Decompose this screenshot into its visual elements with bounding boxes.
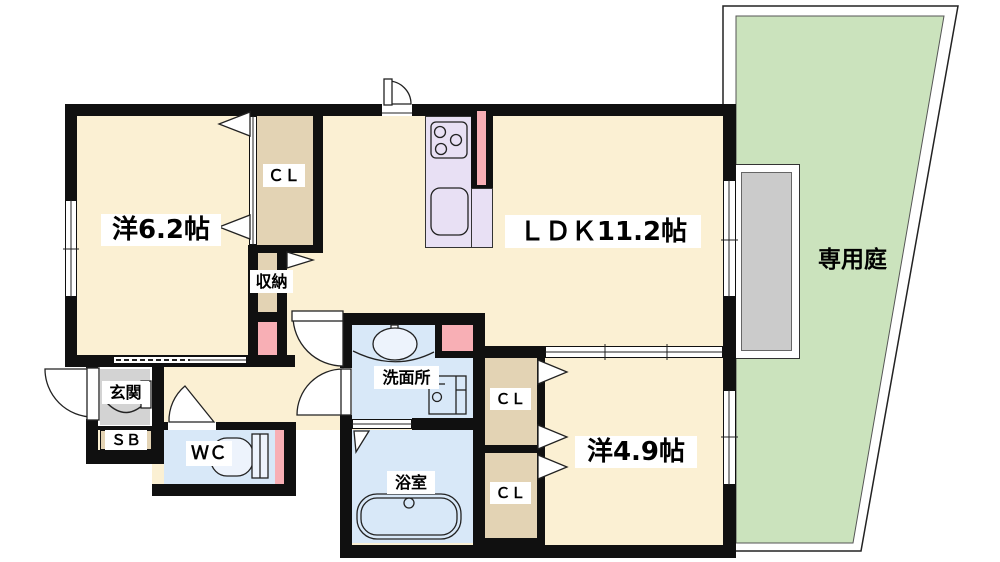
window-terrace-door <box>723 180 736 297</box>
door-gap-washroom <box>340 368 352 415</box>
garden-label: 専用庭 <box>810 245 895 275</box>
entrance-label: 玄関 <box>102 381 149 404</box>
terrace <box>741 172 792 351</box>
washroom-pink-box <box>442 325 473 351</box>
wall-entrance-bottom <box>86 450 164 464</box>
bedroom2-label: 洋4.9帖 <box>575 436 697 468</box>
floorplan: 洋6.2帖 ＬＤＫ11.2帖 洋4.9帖 専用庭 ＣＬ 収納 洗面所 浴室 ＷＣ… <box>0 0 1000 562</box>
door-gap-wc <box>168 422 216 430</box>
closet-upper-label: ＣＬ <box>490 388 531 410</box>
kitchen-door-leaf <box>384 79 392 105</box>
wall-right-c <box>723 485 736 558</box>
toilet-pink-strip <box>275 430 284 484</box>
wall-storage-right <box>277 253 287 355</box>
storage-pink-shaft <box>258 322 278 355</box>
wall-closet1-right <box>313 116 323 253</box>
wall-top-a <box>65 104 382 116</box>
wall-washroom-left-b <box>340 415 352 556</box>
kitchen-counter-ext <box>471 188 493 248</box>
partition-ldk-bedroom2 <box>545 346 723 358</box>
wall-closet1-bottom <box>248 245 323 253</box>
door-track-bathroom <box>352 419 412 429</box>
wall-closetcol-mid <box>485 445 537 453</box>
kitchen-door-swing <box>388 81 411 104</box>
wall-right-a <box>723 104 736 180</box>
wall-washroom-top <box>340 313 485 325</box>
door-gap-kitchen <box>382 104 412 116</box>
washroom-label: 洗面所 <box>374 366 439 389</box>
wall-closetcol-top <box>473 346 545 358</box>
closet-lower-label: ＣＬ <box>490 482 531 504</box>
wall-wc-bottom <box>152 484 296 496</box>
wall-right-b <box>723 297 736 390</box>
door-track-closet1 <box>249 116 257 245</box>
ldk-label: ＬＤＫ11.2帖 <box>505 215 701 248</box>
closet-bedroom1-label: ＣＬ <box>263 164 305 187</box>
kitchen-counter <box>425 116 472 248</box>
wall-south <box>340 545 736 558</box>
bedroom1-label: 洋6.2帖 <box>101 214 221 246</box>
wall-storage-shaft-div <box>248 312 287 322</box>
toilet-label: ＷＣ <box>186 441 232 466</box>
door-gap-entrance <box>84 368 98 419</box>
bathroom-label: 浴室 <box>387 471 435 494</box>
window-bedroom1 <box>65 200 77 297</box>
door-track-bedroom1 <box>113 356 247 364</box>
window-bedroom2 <box>723 390 736 485</box>
wall-wc-right <box>284 422 296 496</box>
wall-top-b <box>412 104 723 116</box>
wall-hall-wc-a <box>152 422 168 430</box>
wall-closetcol-right <box>537 346 545 552</box>
wall-storage-left <box>248 245 258 367</box>
kitchen-pink-panel <box>477 111 486 185</box>
wall-pinkbox-bottom <box>435 351 473 358</box>
wall-entrance-right <box>152 358 164 452</box>
storage-label: 収納 <box>250 270 293 293</box>
shoe-box-label: ＳＢ <box>105 430 147 450</box>
